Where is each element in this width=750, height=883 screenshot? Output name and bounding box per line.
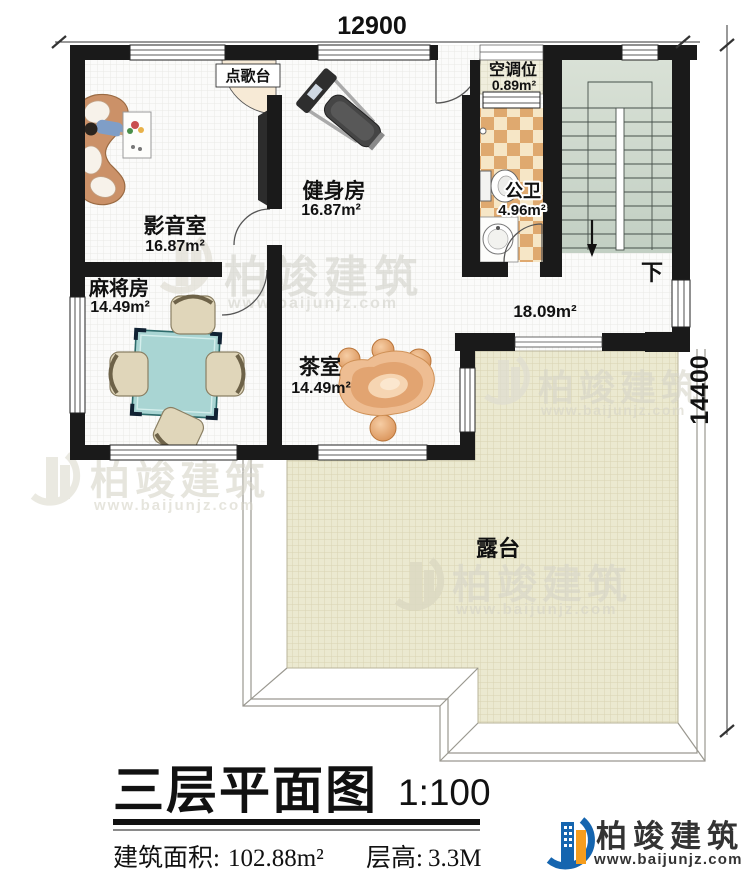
mahjong-chair	[206, 352, 244, 396]
tea-stool	[370, 415, 396, 441]
ac-opening	[480, 45, 543, 60]
gym-name: 健身房	[303, 179, 366, 203]
window	[483, 92, 540, 108]
floorplan-drawing: 柏竣建筑 www.baijunjz.com 柏竣建筑 www.baijunjz.…	[0, 0, 750, 883]
watermark-url: www.baijunjz.com	[540, 402, 686, 418]
window	[110, 445, 237, 460]
gym-area: 16.87m²	[301, 202, 361, 219]
brand-website: www.baijunjz.com	[593, 851, 743, 868]
title-rule-thick	[113, 819, 480, 825]
bathroom-area: 4.96m²	[498, 202, 546, 219]
window	[130, 45, 225, 60]
watermark-left: 柏竣建筑 www.baijunjz.com	[33, 455, 270, 514]
karaoke-label: 点歌台	[216, 64, 280, 87]
floor-height-label: 层高:	[366, 844, 423, 872]
window	[460, 368, 475, 432]
shower-valve	[480, 128, 486, 134]
terrace-name: 露台	[476, 536, 520, 561]
plan-title: 三层平面图	[113, 762, 378, 819]
mahjong-area: 14.49m²	[90, 299, 150, 316]
tv-screen	[258, 110, 268, 206]
build-area-label: 建筑面积:	[113, 844, 220, 872]
watermark-url: www.baijunjz.com	[455, 601, 617, 618]
mahjong-name: 麻将房	[88, 276, 149, 300]
mahjong-chair	[171, 296, 215, 334]
svg-text:点歌台: 点歌台	[225, 67, 270, 85]
stairs-down-label: 下	[641, 260, 663, 285]
window	[318, 445, 427, 460]
plan-scale: 1:100	[398, 772, 491, 813]
dimension-top-label: 12900	[337, 12, 407, 40]
brand-name: 柏竣建筑	[596, 819, 744, 854]
mahjong-chair	[110, 352, 148, 396]
tea-room-name: 茶室	[299, 355, 341, 379]
hall-area: 18.09m²	[513, 302, 577, 321]
window	[622, 45, 658, 60]
tea-room-area: 14.49m²	[291, 380, 351, 397]
brand-logo: 柏竣建筑 www.baijunjz.com	[549, 819, 744, 868]
bathroom-name: 公卫	[505, 181, 541, 201]
sliding-door	[515, 337, 602, 347]
media-room-area: 16.87m²	[145, 238, 205, 255]
floor-height-value: 3.3M	[428, 845, 481, 872]
dimension-right-label: 14400	[686, 355, 714, 425]
floorplan-page: 柏竣建筑 www.baijunjz.com 柏竣建筑 www.baijunjz.…	[0, 0, 750, 883]
build-area-value: 102.88m²	[228, 845, 324, 872]
ac-area: 0.89m²	[492, 77, 537, 93]
watermark-logo-icon	[33, 455, 77, 502]
brand-logo-icon	[549, 820, 591, 866]
media-room-name: 影音室	[144, 214, 207, 238]
title-block: 三层平面图 1:100 建筑面积: 102.88m² 层高: 3.3M	[113, 762, 491, 872]
window	[70, 297, 85, 413]
title-rule-thin	[113, 829, 480, 831]
watermark-url: www.baijunjz.com	[93, 497, 255, 514]
media-room-side-table	[123, 112, 151, 158]
window	[672, 280, 690, 327]
window	[318, 45, 430, 60]
